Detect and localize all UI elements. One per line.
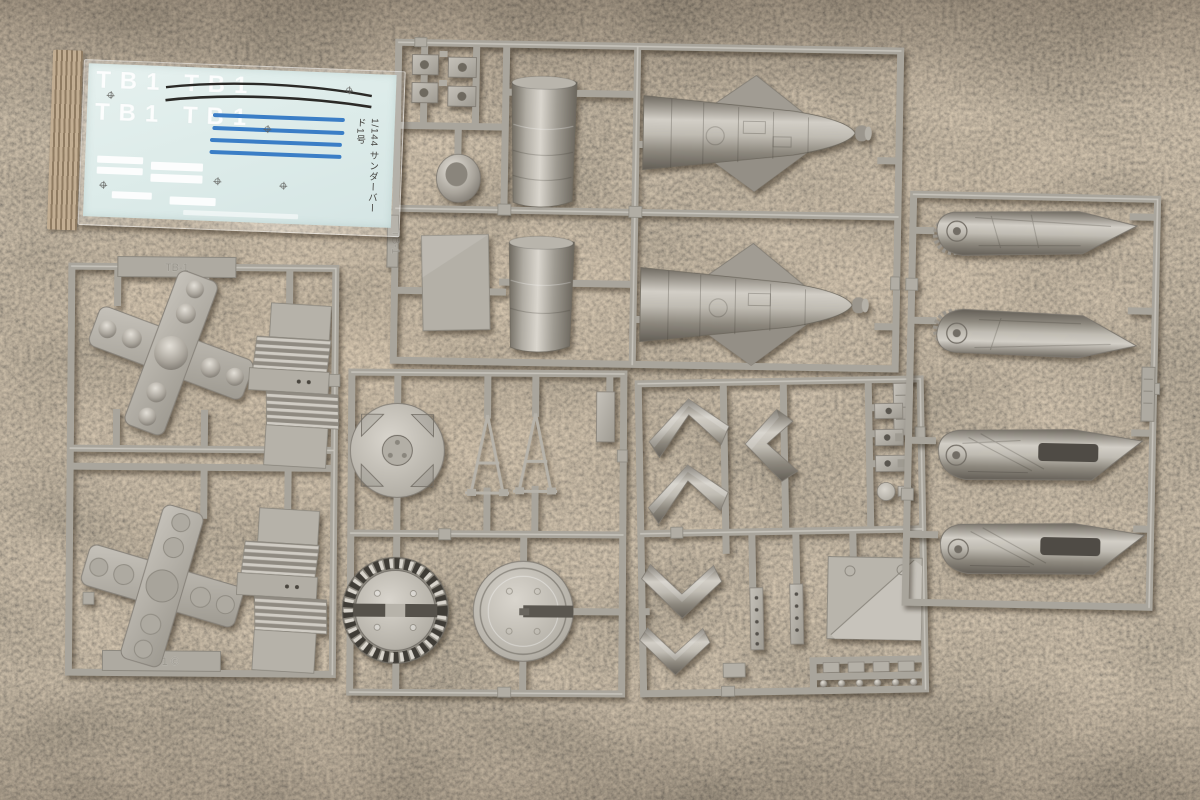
thruster-cross-domed-part	[66, 247, 277, 458]
decal-blue-stripe	[209, 150, 341, 159]
photo-scene: TB1 TB1 TB1 TB1 1/144 サンダーバード1号	[0, 0, 1200, 800]
sprue-fins	[628, 367, 934, 700]
bulkhead-disc-part	[350, 403, 445, 498]
decal-sheet: TB1 TB1 TB1 TB1 1/144 サンダーバード1号	[83, 63, 397, 228]
decal-scale-caption: 1/144 サンダーバード1号	[349, 117, 381, 222]
decal-white-mark	[112, 191, 152, 200]
sprue-fuselage: TB-1	[379, 30, 915, 379]
swing-wing-slotted-part	[938, 427, 1143, 483]
swing-wing-slotted-part	[940, 521, 1145, 577]
fuselage-half-part	[639, 242, 870, 368]
body-cylinder-part	[507, 236, 574, 353]
registration-mark	[214, 178, 220, 184]
rivet-strip-part	[790, 584, 804, 644]
molded-tag	[1141, 367, 1155, 421]
sprue-thrusters: TB-1 TB-1 ©	[54, 252, 350, 697]
registration-mark	[108, 92, 114, 98]
rivet-strip-part	[750, 588, 764, 650]
ribbed-exhaust-block-part	[232, 507, 334, 674]
swing-wing-part	[935, 309, 1137, 359]
decal-bag: TB1 TB1 TB1 TB1 1/144 サンダーバード1号	[78, 59, 406, 237]
swing-wing-part	[935, 209, 1137, 259]
chevron-fin-part	[639, 627, 710, 676]
chevron-fin-part	[641, 563, 722, 618]
sprue-wings	[893, 178, 1200, 614]
registration-mark	[280, 183, 286, 189]
nozzle-ring-part	[342, 557, 449, 664]
sprue-discs	[338, 358, 635, 704]
landing-leg-frame-part	[513, 413, 558, 494]
decal-blue-stripe	[210, 138, 342, 147]
registration-mark	[100, 182, 106, 188]
nose-cone-part	[436, 154, 481, 203]
decal-white-mark	[151, 162, 203, 172]
body-cylinder-part	[510, 76, 577, 208]
base-disc-part	[473, 561, 574, 662]
thruster-cross-flat-part	[63, 486, 262, 685]
angled-fin-part	[745, 409, 798, 482]
decal-white-mark	[183, 210, 298, 219]
chevron-fin-part	[648, 464, 729, 523]
decal-white-mark	[97, 167, 143, 176]
decal-white-mark	[169, 196, 215, 206]
decal-blue-stripe	[212, 126, 344, 135]
decal-white-mark	[97, 156, 143, 165]
hatch-panel-part	[421, 234, 490, 330]
small-blade-part	[596, 392, 614, 442]
chevron-fin-part	[648, 398, 729, 457]
landing-leg-frame-part	[465, 415, 510, 496]
fuselage-half-part	[642, 74, 872, 194]
decal-white-mark	[150, 174, 202, 184]
